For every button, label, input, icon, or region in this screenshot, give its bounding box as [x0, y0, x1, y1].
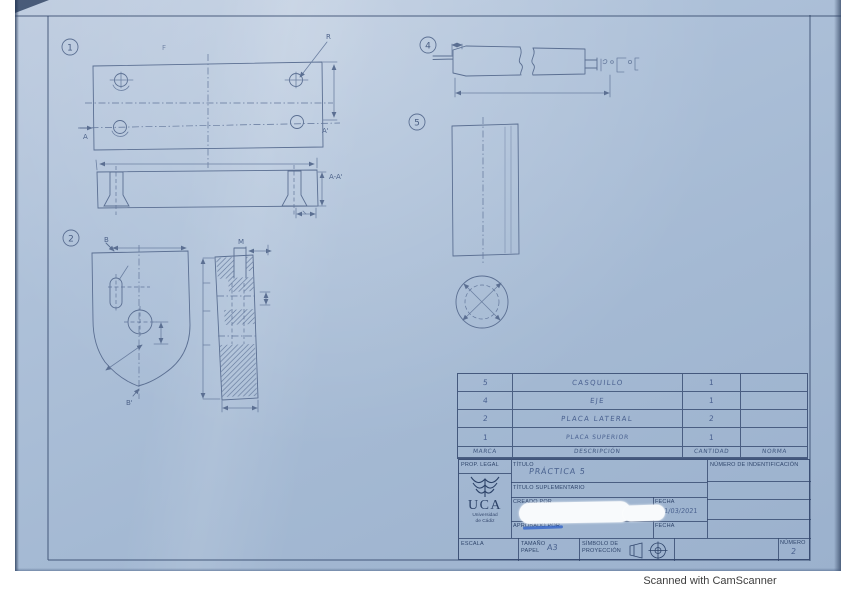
label-section-aa: A-A' [329, 173, 343, 181]
label-b: B [104, 236, 109, 244]
parts-row-cell: 1 [683, 392, 741, 410]
drawing-2-section-view: M [203, 238, 271, 412]
parts-row-cell: CASQUILLO [513, 374, 683, 392]
label-r: R [326, 33, 331, 41]
prop-legal-label: PROP. LEGAL [461, 462, 499, 468]
part-balloon-4-number: 4 [425, 42, 431, 52]
header-descripcion: DESCRIPCIÓN [574, 449, 621, 455]
scanned-paper-sheet: 1 R F A A' [15, 0, 841, 571]
label-a-prime: A' [322, 127, 329, 135]
row2-cantidad: 1 [709, 396, 715, 405]
parts-row-cell: PLACA LATERAL [513, 410, 683, 428]
header-norma: NORMA [761, 449, 786, 455]
parts-row-cell: 2 [683, 410, 741, 428]
row4-descripcion: PLACA SUPERIOR [566, 434, 630, 441]
part-balloon-2-number: 2 [68, 235, 74, 245]
row1-marca: 5 [482, 378, 488, 387]
label-m: M [238, 238, 244, 246]
uca-subtitle-2: de Cádiz [459, 519, 511, 525]
simbolo-label-1: SÍMBOLO DE [582, 541, 618, 547]
parts-row-cell: 2 [458, 410, 513, 428]
camscanner-credit: Scanned with CamScanner [600, 575, 820, 587]
fecha-value: 11/03/2021 [660, 507, 698, 515]
projection-symbol-icon [627, 541, 673, 560]
simbolo-label-2: PROYECCIÓN [582, 548, 621, 554]
row3-marca: 2 [482, 414, 488, 423]
parts-header-cell: MARCA [458, 447, 513, 458]
parts-header-cell: DESCRIPCIÓN [513, 447, 683, 458]
whiteout-blob-2 [623, 504, 666, 521]
drawing-2-front-view: 2 B B' [63, 230, 190, 407]
parts-row-cell: 5 [458, 374, 513, 392]
header-marca: MARCA [473, 449, 497, 455]
row4-cantidad: 1 [709, 433, 715, 442]
row2-marca: 4 [482, 396, 488, 405]
row1-cantidad: 1 [709, 378, 715, 387]
drawing-1-section-aa: A-A' [96, 158, 343, 218]
scanned-drawing-screen: 1 R F A A' [0, 0, 848, 599]
numero-value: 2 [791, 547, 797, 556]
uca-logo: UCA Universidad de Cádiz [459, 473, 511, 538]
parts-row-cell: PLACA SUPERIOR [513, 428, 683, 447]
escala-label: ESCALA [461, 541, 484, 547]
tamano-label-1: TAMAÑO [521, 541, 545, 547]
row4-marca: 1 [482, 433, 488, 442]
parts-row-cell: 1 [683, 374, 741, 392]
parts-header-cell: CANTIDAD [683, 447, 741, 458]
drawing-5-bushing: 5 [409, 114, 519, 328]
parts-row-cell: 1 [683, 428, 741, 447]
parts-row-cell: 4 [458, 392, 513, 410]
numero-identificacion-label: NÚMERO DE INDENTIFICACIÓN [710, 462, 798, 468]
row3-cantidad: 2 [709, 414, 715, 423]
header-cantidad: CANTIDAD [694, 449, 730, 455]
uca-logo-waves-icon [465, 475, 505, 499]
titulo-value: PRÁCTICA 5 [529, 467, 587, 476]
parts-row-cell: 1 [458, 428, 513, 447]
row1-descripcion: CASQUILLO [571, 379, 623, 387]
numero-label: NÚMERO [780, 540, 806, 546]
parts-row-cell [741, 410, 807, 428]
label-a: A [83, 133, 88, 141]
tamano-value: A3 [547, 543, 559, 552]
part-balloon-1-number: 1 [67, 44, 73, 54]
drawing-4-shaft: 4 [420, 37, 639, 97]
label-b-prime: B' [126, 399, 133, 407]
fecha-label-2: FECHA [655, 523, 675, 529]
parts-row-cell [741, 392, 807, 410]
titulo-suplementario-label: TÍTULO SUPLEMENTARIO [513, 485, 585, 491]
tamano-label-2: PAPEL [521, 548, 539, 554]
label-f: F [162, 44, 166, 52]
parts-list-table: 5 CASQUILLO 1 4 EJE 1 2 PLACA LATERAL 2 … [457, 373, 808, 459]
parts-row-cell [741, 428, 807, 447]
parts-header-cell: NORMA [741, 447, 807, 458]
whiteout-blob-1 [519, 501, 631, 524]
part-balloon-5-number: 5 [414, 119, 420, 129]
row3-descripcion: PLACA LATERAL [561, 415, 634, 423]
parts-row-cell [741, 374, 807, 392]
parts-row-cell: EJE [513, 392, 683, 410]
row2-descripcion: EJE [590, 397, 606, 405]
drawing-1-top-view: 1 R F A A' [62, 33, 340, 168]
uca-logo-text: UCA [459, 499, 511, 513]
